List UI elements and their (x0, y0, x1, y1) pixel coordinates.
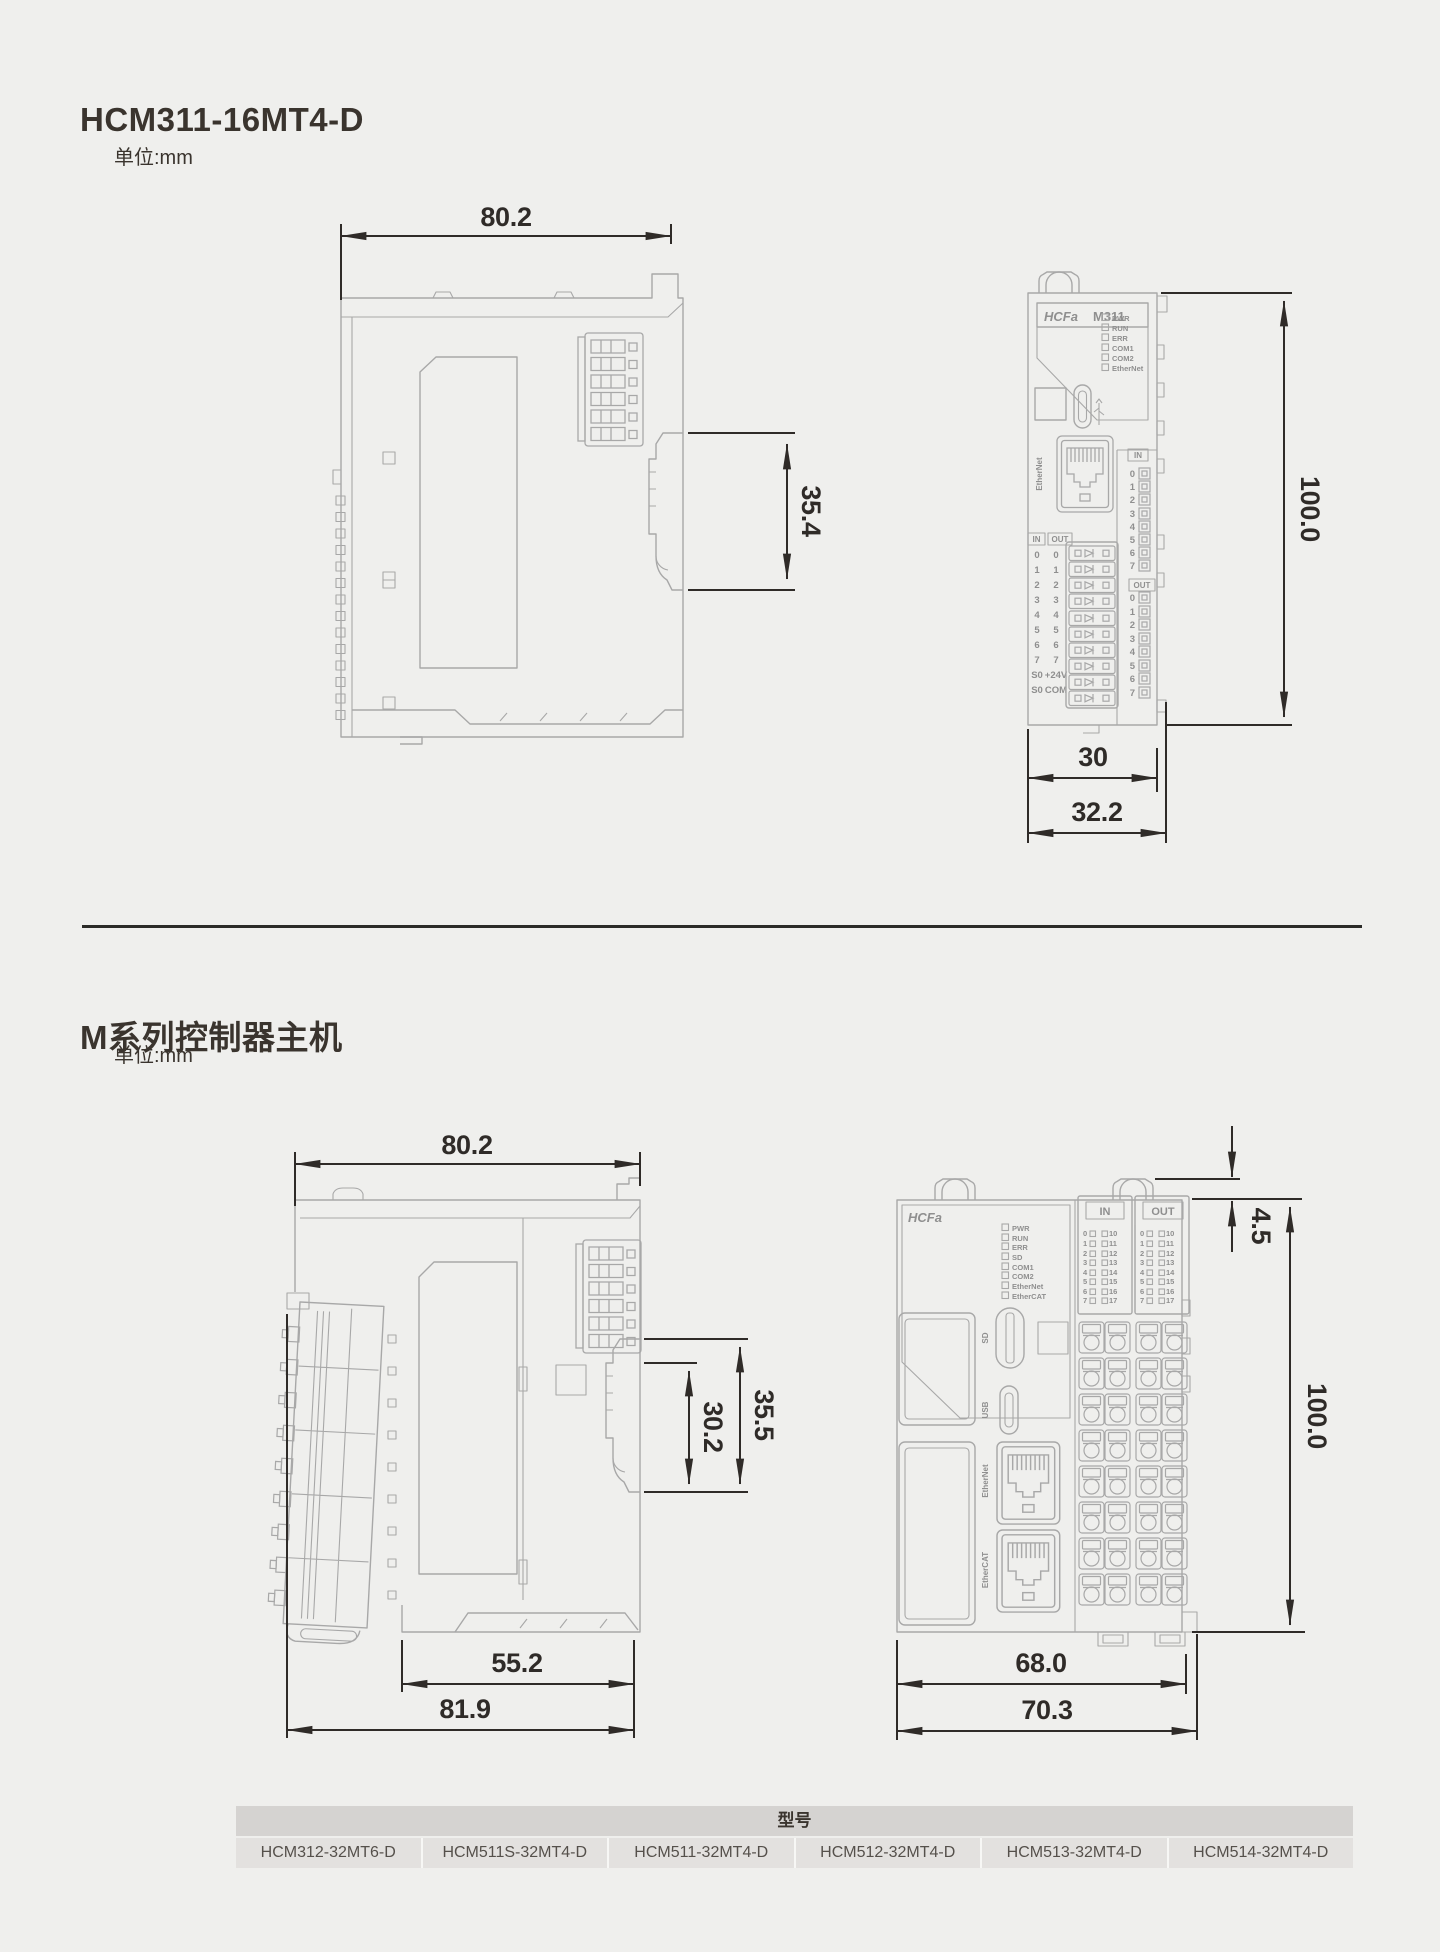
io-num: 0 (1083, 1229, 1087, 1238)
row-label: +24V (1045, 670, 1068, 681)
row-label: 4 (1034, 610, 1040, 621)
hcm311-side-view-drawing: 80.2 35.4 (250, 195, 830, 765)
io-num: 6 (1130, 548, 1135, 559)
section1-title: HCM311-16MT4-D (80, 102, 364, 138)
brand-logo: HCFa (1044, 309, 1078, 324)
io-num: 15 (1109, 1277, 1117, 1286)
io-num: 3 (1130, 634, 1135, 645)
io-num: 6 (1140, 1287, 1144, 1296)
rj45-icon (1057, 436, 1113, 512)
io-num: 11 (1109, 1239, 1117, 1248)
io-num: 7 (1130, 688, 1135, 699)
model-cell: HCM512-32MT4-D (794, 1838, 981, 1868)
io-label-blocks: IN OUT 010 111 212 313 414 515 616 717 0… (1078, 1196, 1189, 1314)
io-num: 7 (1130, 561, 1135, 572)
front-door-open (266, 1301, 384, 1645)
front-view-dimensions: 100.0 30 32.2 (1028, 293, 1325, 843)
cover-panels (899, 1313, 975, 1625)
row-label: 0 (1053, 550, 1058, 561)
model-cell: HCM513-32MT4-D (980, 1838, 1167, 1868)
io-num: 2 (1083, 1249, 1087, 1258)
io-num: 4 (1130, 522, 1136, 533)
led-label: SD (1012, 1253, 1023, 1262)
io-num: 14 (1109, 1268, 1118, 1277)
usb-icon (1094, 399, 1104, 425)
dim-tab-4-5: 4.5 (1246, 1208, 1276, 1245)
row-label: 1 (1053, 565, 1059, 576)
io-num: 16 (1109, 1287, 1117, 1296)
led-label: ERR (1012, 1243, 1028, 1252)
led-label: PWR (1012, 1224, 1030, 1233)
row-label: 1 (1034, 565, 1040, 576)
io-num: 3 (1140, 1258, 1144, 1267)
io-connector-block (1066, 542, 1118, 708)
row-label: 6 (1034, 640, 1039, 651)
io-num: 16 (1166, 1287, 1174, 1296)
io-num: 0 (1140, 1229, 1144, 1238)
dim-total-81-9: 81.9 (439, 1694, 491, 1724)
side-view-outline (333, 274, 683, 744)
led-label: ERR (1112, 334, 1128, 343)
led-label: PWR (1112, 314, 1130, 323)
ethernet-label: EtherNet (981, 1464, 990, 1498)
brand-logo: HCFa (908, 1210, 942, 1225)
ethercat-port: EtherCAT (981, 1530, 1060, 1612)
led-label: RUN (1112, 324, 1128, 333)
io-num: 1 (1130, 482, 1136, 493)
dim-height-100: 100.0 (1295, 476, 1325, 542)
side-view-dimensions: 80.2 30.2 35.5 55.2 81.9 (287, 1130, 779, 1738)
model-table: 型号 HCM312-32MT6-D HCM511S-32MT4-D HCM511… (236, 1806, 1353, 1868)
rj45-icon (997, 1442, 1060, 1524)
terminal-clamp-grid (1079, 1322, 1187, 1605)
row-label: 6 (1053, 640, 1058, 651)
catalog-page: HCM311-16MT4-D 单位:mm 80.2 35.4 (0, 0, 1440, 1952)
m-series-front-view-drawing: HCFa PWR RUN ERR SD COM1 COM2 EtherNet E… (850, 1110, 1360, 1760)
io-num: 6 (1083, 1287, 1087, 1296)
side-view-dimensions: 80.2 35.4 (341, 202, 826, 590)
usb-label: USB (981, 1401, 990, 1418)
io-num: 2 (1130, 495, 1135, 506)
rj45-icon (997, 1530, 1060, 1612)
dim-width-80-2: 80.2 (441, 1130, 492, 1160)
led-label: COM2 (1112, 354, 1134, 363)
section-divider (82, 925, 1362, 928)
io-num: 11 (1166, 1239, 1174, 1248)
section1-unit: 单位:mm (114, 148, 193, 168)
io-num: 10 (1166, 1229, 1174, 1238)
io-num: 12 (1166, 1249, 1174, 1258)
dim-clip-30-2: 30.2 (698, 1401, 728, 1452)
io-num: 2 (1130, 620, 1135, 631)
led-label: COM1 (1012, 1263, 1034, 1272)
io-num: 2 (1140, 1249, 1144, 1258)
io-num: 0 (1130, 593, 1135, 604)
ethercat-label: EtherCAT (981, 1552, 990, 1588)
io-num: 4 (1140, 1268, 1145, 1277)
io-num: 17 (1166, 1296, 1174, 1305)
row-label: S0 (1031, 685, 1043, 696)
io-num: 4 (1130, 647, 1136, 658)
ethernet-port-label: EtherNet (1035, 457, 1044, 491)
m-series-side-view-drawing: 80.2 30.2 35.5 55.2 81.9 (240, 1110, 840, 1760)
row-label: 5 (1053, 625, 1059, 636)
dim-width-80-2: 80.2 (480, 202, 531, 232)
led-label: EtherCAT (1012, 1292, 1046, 1301)
dim-total-70-3: 70.3 (1021, 1695, 1073, 1725)
io-num: 12 (1109, 1249, 1117, 1258)
led-label: EtherNet (1012, 1282, 1044, 1291)
led-label: COM1 (1112, 344, 1134, 353)
side-view-outline (266, 1178, 641, 1645)
io-num: 3 (1130, 509, 1135, 520)
dim-width-30: 30 (1078, 742, 1107, 772)
out-header: OUT (1134, 581, 1151, 590)
io-num: 1 (1130, 607, 1136, 618)
io-num: 3 (1083, 1258, 1087, 1267)
usb-port: USB (981, 1386, 1018, 1434)
row-label: COM (1045, 685, 1067, 696)
io-num: 13 (1166, 1258, 1174, 1267)
io-num: 1 (1140, 1239, 1144, 1248)
hcm311-front-view-drawing: HCFa M311 PWR RUN ERR COM1 COM2 EtherNet… (995, 215, 1325, 865)
dim-width-68: 68.0 (1015, 1648, 1066, 1678)
col-header-in: IN (1033, 535, 1041, 544)
row-label: 3 (1034, 595, 1039, 606)
io-num: 5 (1130, 661, 1136, 672)
led-indicator-list: PWR RUN ERR SD COM1 COM2 EtherNet EtherC… (1002, 1224, 1046, 1301)
ethernet-port: EtherNet (1035, 436, 1113, 512)
io-num: 4 (1083, 1268, 1088, 1277)
model-cell: HCM514-32MT4-D (1167, 1838, 1354, 1868)
io-status-column: IN 0 1 2 3 4 5 6 7 OUT 0 1 2 3 4 5 6 7 (1128, 449, 1155, 699)
row-label: 7 (1053, 655, 1058, 666)
model-table-header: 型号 (236, 1806, 1353, 1836)
model-cell: HCM511-32MT4-D (607, 1838, 794, 1868)
io-num: 6 (1130, 674, 1135, 685)
row-label: 0 (1034, 550, 1039, 561)
io-num: 15 (1166, 1277, 1174, 1286)
dim-clip-35-5: 35.5 (749, 1389, 779, 1441)
io-num: 1 (1083, 1239, 1087, 1248)
io-num: 0 (1130, 469, 1135, 480)
dim-body-55-2: 55.2 (491, 1648, 542, 1678)
model-cell: HCM312-32MT6-D (236, 1838, 421, 1868)
sd-slot: SD (981, 1308, 1068, 1368)
row-label: 3 (1053, 595, 1058, 606)
row-label: 5 (1034, 625, 1040, 636)
out-header: OUT (1151, 1206, 1175, 1218)
io-num: 5 (1083, 1277, 1087, 1286)
row-label: S0 (1031, 670, 1043, 681)
in-header: IN (1134, 451, 1142, 460)
model-cell: HCM511S-32MT4-D (421, 1838, 608, 1868)
led-label: COM2 (1012, 1272, 1034, 1281)
section2-unit: 单位:mm (114, 1046, 193, 1066)
in-header: IN (1100, 1206, 1111, 1218)
row-label: 7 (1034, 655, 1039, 666)
row-label: 2 (1053, 580, 1058, 591)
io-num: 14 (1166, 1268, 1175, 1277)
io-num: 7 (1140, 1296, 1144, 1305)
io-num: 10 (1109, 1229, 1117, 1238)
io-num: 7 (1083, 1296, 1087, 1305)
dim-width-32-2: 32.2 (1071, 797, 1122, 827)
ethernet-port: EtherNet (981, 1442, 1060, 1524)
io-num: 17 (1109, 1296, 1117, 1305)
row-label: 4 (1053, 610, 1059, 621)
io-num: 5 (1130, 535, 1136, 546)
led-label: RUN (1012, 1234, 1028, 1243)
dim-clip-35-4: 35.4 (796, 485, 826, 537)
dim-height-100: 100.0 (1302, 1383, 1332, 1449)
row-label: 2 (1034, 580, 1039, 591)
model-table-row: HCM312-32MT6-D HCM511S-32MT4-D HCM511-32… (236, 1838, 1353, 1868)
io-num: 13 (1109, 1258, 1117, 1267)
sd-label: SD (981, 1332, 990, 1343)
led-label: EtherNet (1112, 364, 1144, 373)
io-num: 5 (1140, 1277, 1144, 1286)
